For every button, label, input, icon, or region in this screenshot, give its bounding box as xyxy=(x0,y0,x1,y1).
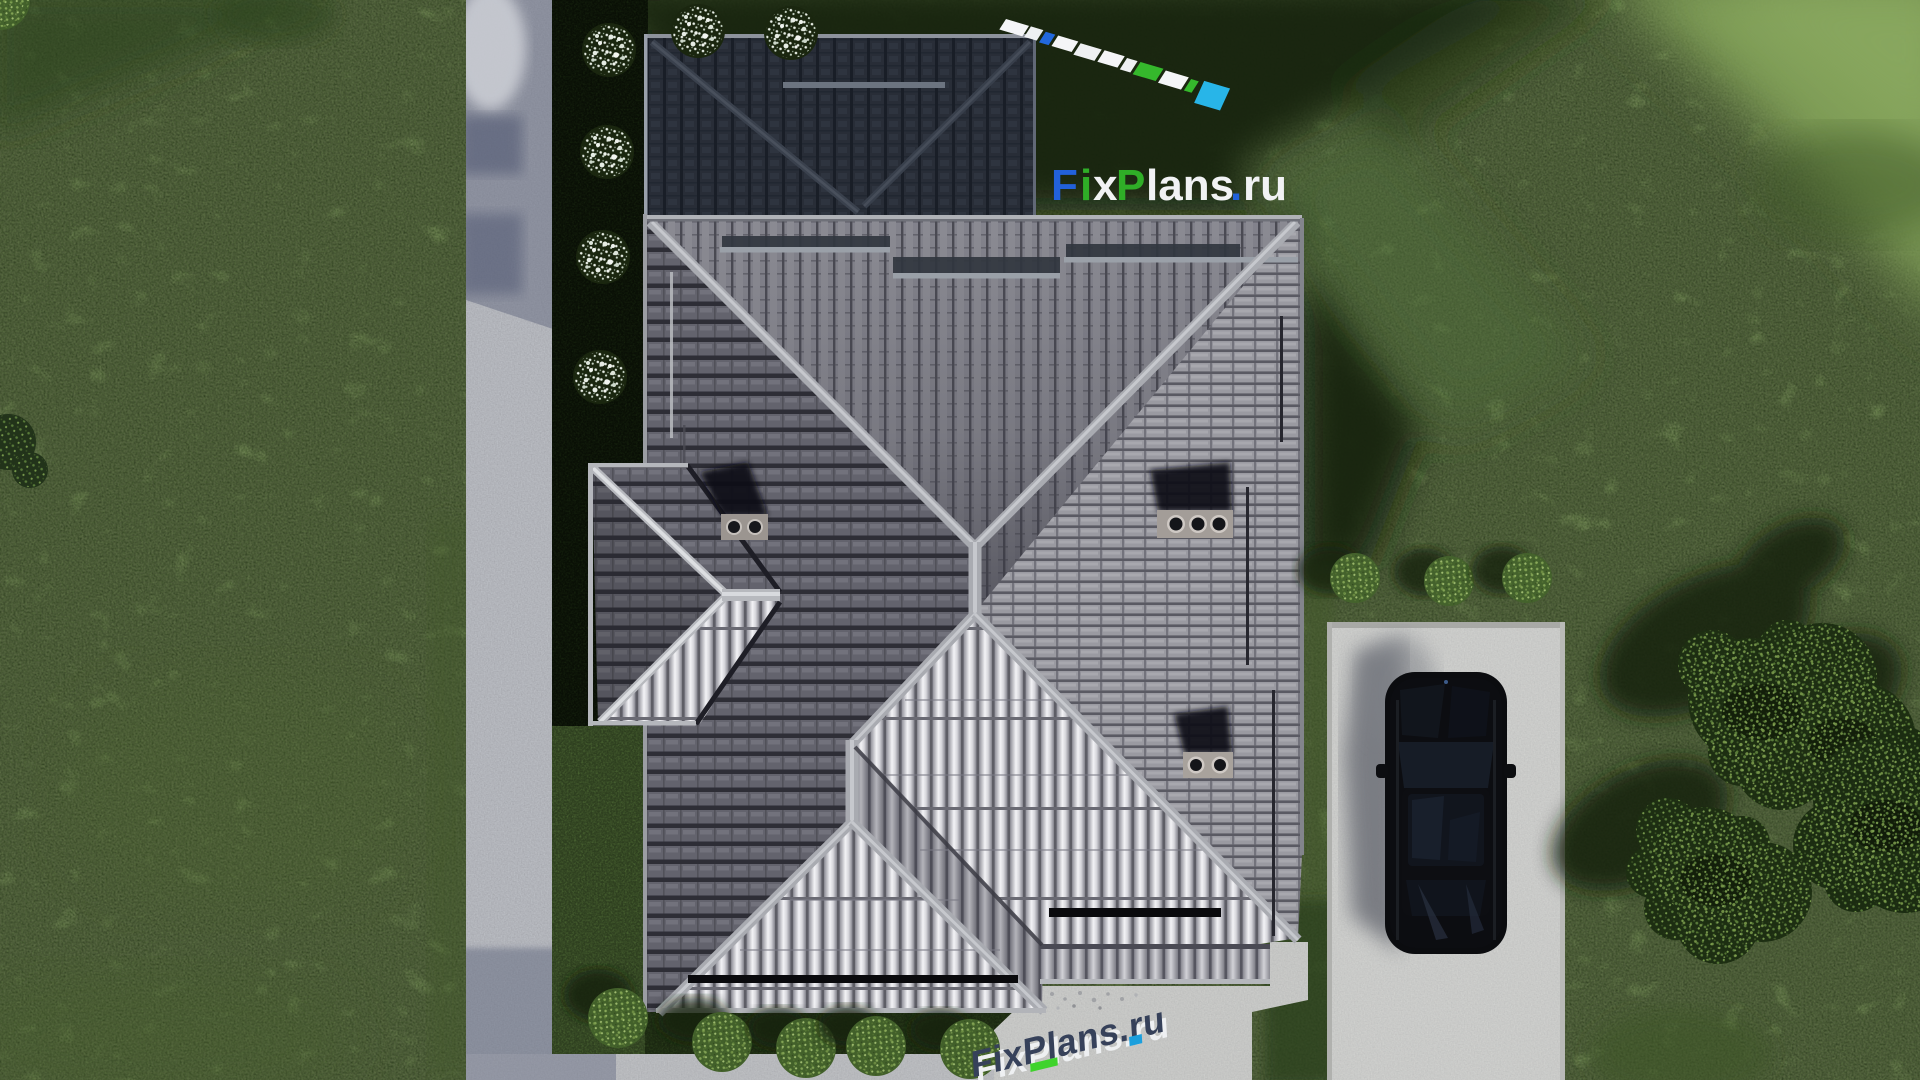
svg-text:lans: lans xyxy=(1146,161,1234,210)
svg-text:x: x xyxy=(1093,161,1118,210)
svg-text:i: i xyxy=(1080,161,1092,210)
svg-text:.: . xyxy=(1230,161,1242,210)
svg-text:F: F xyxy=(1051,161,1078,210)
svg-text:ru: ru xyxy=(1243,161,1287,210)
svg-text:P: P xyxy=(1116,161,1145,210)
